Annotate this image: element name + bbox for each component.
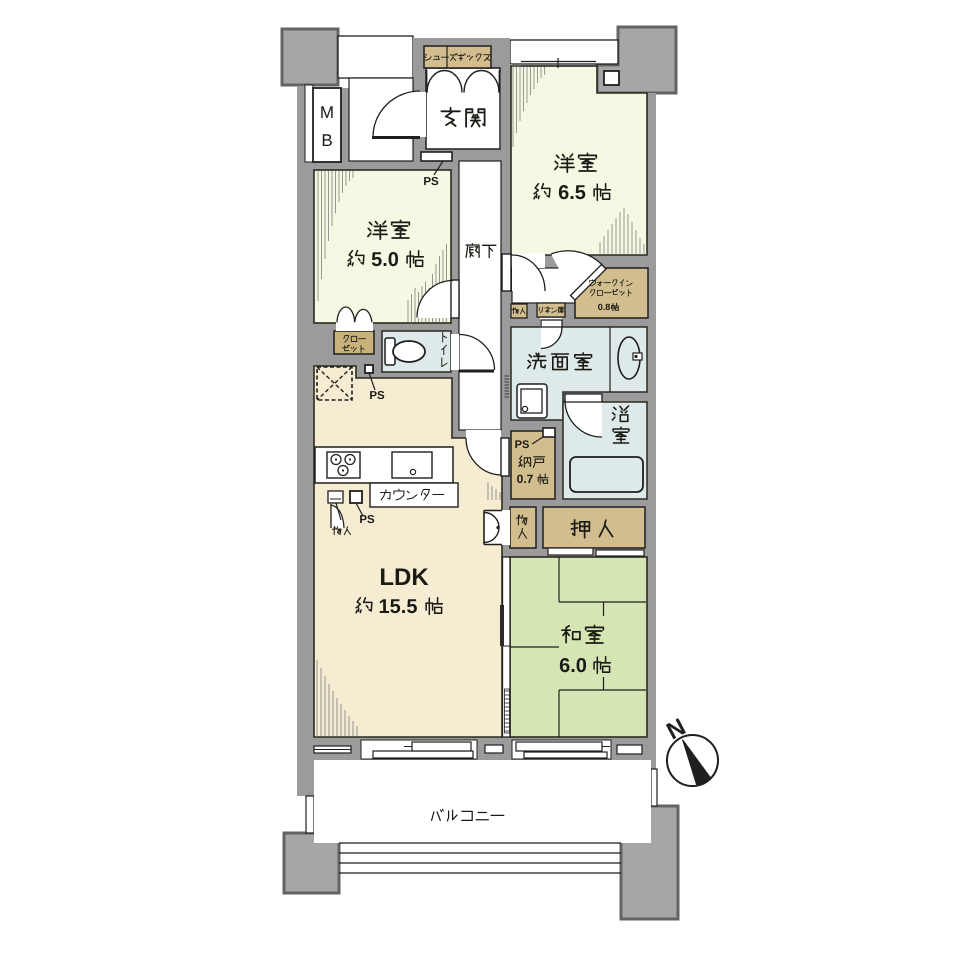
svg-text:B: B [321,131,332,150]
svg-text:PS: PS [515,439,530,451]
svg-text:M: M [320,103,334,122]
svg-text:LDK: LDK [379,564,429,591]
svg-text:PS: PS [369,390,385,402]
svg-text:0.7: 0.7 [517,472,534,486]
svg-text:5.0: 5.0 [371,249,399,271]
svg-text:6.0: 6.0 [559,655,587,677]
svg-text:6.5: 6.5 [558,182,586,204]
svg-text:0.8: 0.8 [598,302,611,312]
svg-text:PS: PS [359,514,375,526]
svg-text:15.5: 15.5 [379,596,418,618]
svg-text:PS: PS [423,176,439,188]
